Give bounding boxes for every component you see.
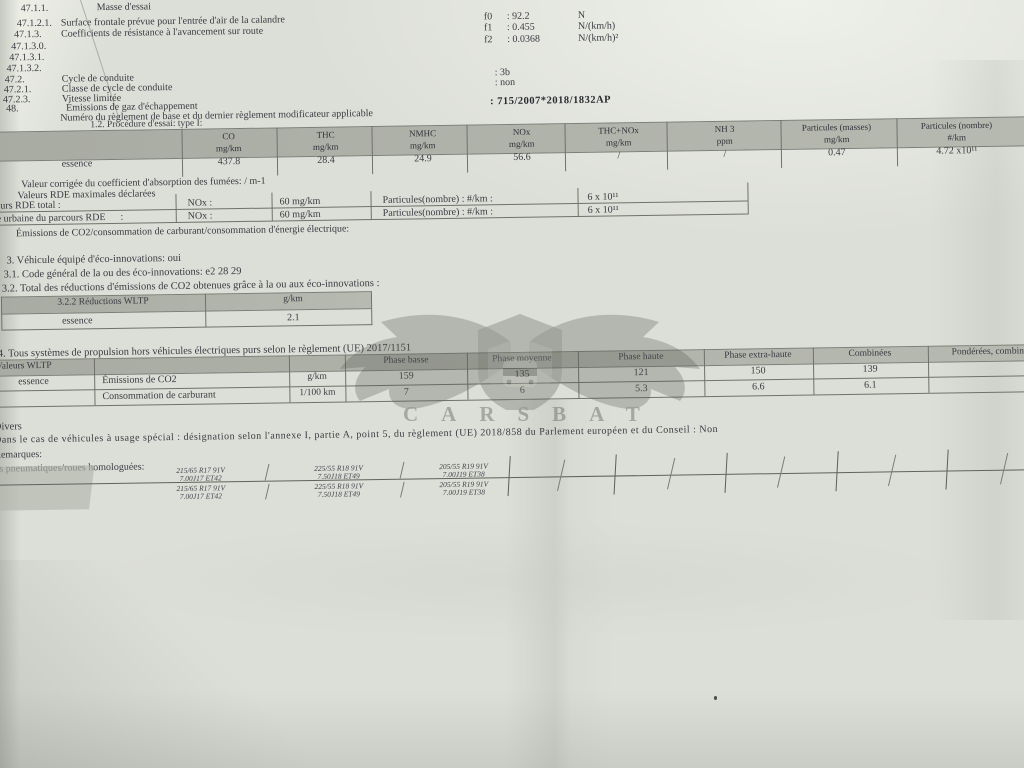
rde-limit: 60 mg/km bbox=[280, 209, 321, 221]
item-number: 47.1.3.0. bbox=[11, 41, 46, 53]
tyre-table-divider-line bbox=[0, 469, 1024, 486]
coefficient-value: : 0.0368 bbox=[507, 34, 540, 45]
coefficient-name: f2 bbox=[484, 34, 493, 45]
coefficient-value: : 0.455 bbox=[507, 22, 535, 33]
top-item-list: 47.1.1. Masse d'essai 47.1.2.1. Surface … bbox=[0, 0, 1021, 8]
coefficient-name: f0 bbox=[484, 11, 493, 22]
rde-pollutant: NOx : bbox=[188, 210, 213, 221]
regulation-number-value: : 715/2007*2018/1832AP bbox=[490, 95, 611, 108]
nmhc-value: 24.9 bbox=[414, 153, 432, 164]
nh3-value: / bbox=[723, 149, 726, 160]
special-vehicles-line: Dans le cas de véhicules à usage spécial… bbox=[0, 424, 718, 446]
co2-phase-value: 159 bbox=[399, 370, 414, 381]
co2-phase-value: 135 bbox=[515, 369, 530, 380]
coefficient-name: f1 bbox=[484, 22, 493, 33]
column-header: COmg/km bbox=[183, 130, 273, 155]
nox-value: 56.6 bbox=[513, 152, 531, 163]
co-value: 437.8 bbox=[218, 156, 241, 167]
eco-equipped-line: 3. Véhicule équipé d'éco-innovations: ou… bbox=[6, 253, 181, 267]
phase-header: Phase extra-haute bbox=[724, 350, 791, 362]
coefficient-value: : 92.2 bbox=[507, 11, 530, 22]
wltp-fuel: essence bbox=[18, 376, 49, 387]
tyre-cell-divider bbox=[400, 482, 405, 498]
coefficient-unit: N/(km/h)² bbox=[578, 32, 618, 44]
phase-header: Phase moyenne bbox=[492, 353, 552, 365]
column-header: THC+NOxmg/km bbox=[568, 124, 668, 149]
phase-header: Pondérées, combinées bbox=[924, 346, 1024, 359]
thc-value: 28.4 bbox=[317, 155, 335, 166]
eco-table-header-label: 3.2.2 Réductions WLTP bbox=[57, 296, 148, 308]
wltp-param: Émissions de CO2 bbox=[102, 374, 177, 386]
rim-size: 7.00J19 ET38 bbox=[443, 488, 485, 497]
column-header: NMHCmg/km bbox=[377, 127, 467, 152]
certificate-of-conformity-page: 47.1.1. Masse d'essai 47.1.2.1. Surface … bbox=[0, 0, 1024, 768]
column-header: Particules (nombre)#/km bbox=[891, 118, 1021, 144]
fuel-phase-value: 6.6 bbox=[752, 381, 765, 392]
co2-phase-value: 150 bbox=[751, 365, 766, 376]
rde-pollutant: NOx : bbox=[187, 197, 212, 208]
wltp-corner-label: Valeurs WLTP bbox=[0, 361, 52, 373]
phase-header: Combinées bbox=[848, 348, 891, 360]
eco-table-header-unit: g/km bbox=[283, 294, 303, 305]
item-number: 47.1.3. bbox=[14, 29, 42, 40]
fuel-row-label: essence bbox=[62, 158, 93, 169]
fuel-phase-value: 7 bbox=[404, 387, 409, 398]
co2-phase-value: 139 bbox=[863, 364, 878, 375]
fuel-phase-value: 6.1 bbox=[864, 380, 877, 391]
type1-emissions-table: 1.2. Procédure d'essai: type I: COmg/km … bbox=[0, 0, 1021, 8]
tyre-cell-divider bbox=[265, 464, 270, 481]
thc-nox-value: / bbox=[617, 150, 620, 161]
fuel-phase-value: 6 bbox=[520, 385, 525, 396]
item-label: Masse d'essai bbox=[97, 1, 151, 13]
rde-particles-value: 6 x 10¹¹ bbox=[587, 191, 618, 202]
column-header: Particules (masses)mg/km bbox=[776, 120, 896, 146]
particle-number-value: 4.72 x10¹¹ bbox=[936, 145, 977, 157]
coefficient-unit: N/(km/h) bbox=[578, 20, 615, 32]
column-header: NH 3ppm bbox=[679, 122, 769, 147]
eco-innovations-section: 3. Véhicule équipé d'éco-innovations: ou… bbox=[0, 0, 1021, 8]
phase-header: Phase basse bbox=[383, 355, 428, 367]
remarks-label: Remarques: bbox=[0, 449, 42, 461]
wltp-section: 4. Tous systèmes de propulsion hors véhi… bbox=[0, 0, 1021, 8]
wltp-param: Consommation de carburant bbox=[102, 389, 215, 402]
phase-header: Phase haute bbox=[618, 352, 663, 364]
item-number: 47.1.3.2. bbox=[6, 63, 41, 75]
rde-limit: 60 mg/km bbox=[279, 196, 320, 208]
coefficient-unit: N bbox=[578, 10, 585, 21]
divers-section: Divers Dans le cas de véhicules à usage … bbox=[0, 0, 1021, 8]
wltp-unit: 1/100 km bbox=[299, 388, 335, 400]
item-number: 47.1.3.1. bbox=[9, 52, 44, 64]
column-header: THCmg/km bbox=[280, 128, 370, 153]
rim-size: 7.50J18 ET49 bbox=[318, 490, 360, 499]
eco-table-fuel: essence bbox=[62, 315, 93, 326]
particle-mass-value: 0.47 bbox=[828, 147, 846, 158]
tyre-cell-divider bbox=[400, 462, 405, 479]
eco-code-line: 3.1. Code général de la ou des éco-innov… bbox=[4, 266, 242, 281]
shadow-blob bbox=[0, 465, 95, 511]
divers-title: Divers bbox=[0, 421, 22, 432]
rde-section: Valeur corrigée du coefficient d'absorpt… bbox=[0, 0, 1021, 8]
rde-particles-value: 6 x 10¹¹ bbox=[588, 204, 619, 215]
item-label: Coefficients de résistance à l'avancemen… bbox=[61, 26, 263, 40]
item-number: 48. bbox=[6, 103, 19, 114]
wltp-unit: g/km bbox=[307, 372, 327, 383]
item-value: : non bbox=[495, 77, 515, 88]
column-header: NOxmg/km bbox=[476, 125, 566, 150]
co2-consumption-line: Émissions de CO2/consommation de carbura… bbox=[16, 223, 349, 239]
item-number: 47.1.2.1. bbox=[17, 18, 52, 30]
fuel-phase-value: 5.3 bbox=[635, 383, 648, 394]
rim-size: 7.00J17 ET42 bbox=[180, 492, 222, 501]
photographed-document: CARSBAT 47.1.1. Masse d'essai 47.1.2.1. … bbox=[0, 0, 1024, 768]
eco-table-value: 2.1 bbox=[287, 312, 300, 323]
tyre-cell-divider bbox=[265, 484, 270, 500]
co2-phase-value: 121 bbox=[634, 367, 649, 378]
item-number: 47.1.1. bbox=[21, 3, 49, 14]
